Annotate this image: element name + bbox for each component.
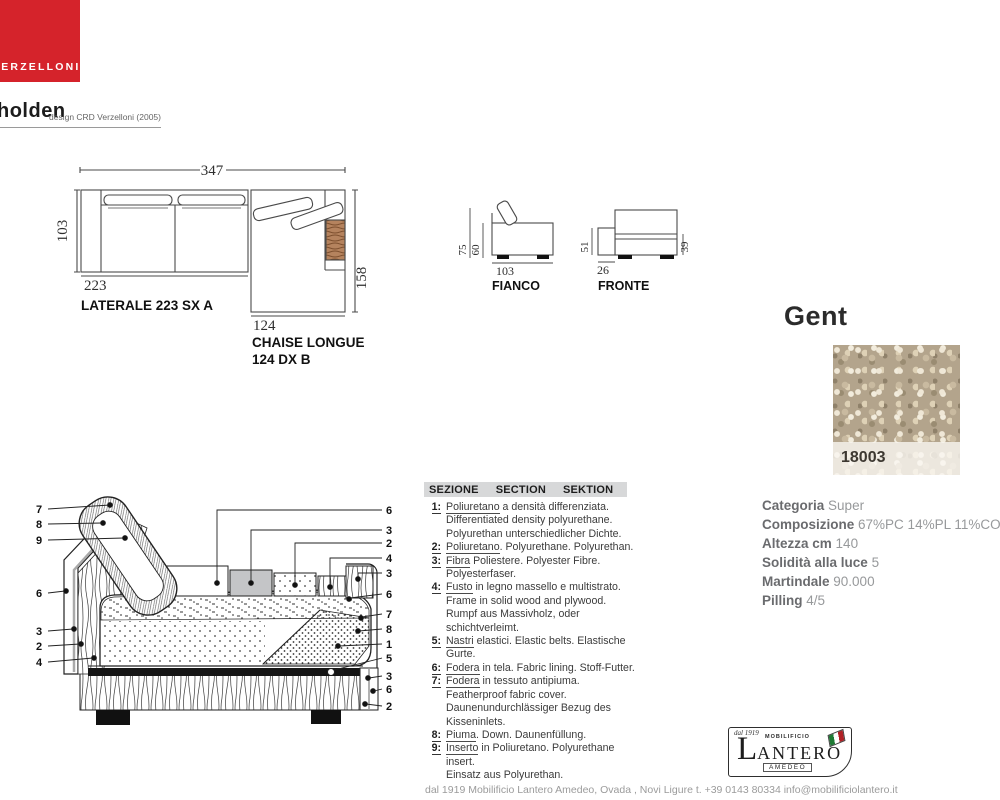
legend-item: 8: Piuma. Down. Daunenfüllung. [424, 729, 639, 742]
fronte-body [615, 210, 677, 255]
callout-left-3: 6 [36, 588, 42, 600]
spec-row: Altezza cm 140 [762, 534, 1000, 553]
fianco-body [492, 223, 553, 255]
legend-item: 2: Poliuretano. Polyurethane. Polyuretha… [424, 541, 639, 554]
legend-item: 3: Fibra Poliestere. Polyester Fibre. Po… [424, 555, 639, 582]
lateral-label: LATERALE 223 SX A [81, 298, 213, 313]
callout-right-4: 3 [386, 568, 392, 580]
fabric-name: Gent [784, 301, 848, 332]
dim-line-103 [74, 190, 80, 272]
section-legend: 1: Poliuretano a densità differenziata. … [424, 501, 639, 783]
callout-left-6: 4 [36, 657, 43, 669]
fronte-dim-51: 51 [579, 242, 591, 253]
chaise-label-2: 124 DX B [252, 352, 311, 367]
section-foot-right [311, 710, 341, 724]
section-diagram: 7 8 9 6 3 2 4 6 3 2 4 3 6 7 8 1 5 3 6 2 [28, 478, 403, 748]
fianco-dim-60: 60 [470, 244, 482, 256]
callout-right-2: 2 [386, 538, 392, 550]
fronte-armrest [598, 228, 615, 255]
callout-left-4: 3 [36, 626, 42, 638]
callout-right-5: 6 [386, 589, 392, 601]
callout-left-1: 8 [36, 519, 42, 531]
dim-103: 103 [55, 220, 71, 243]
chaise-wood-insert [326, 220, 345, 260]
design-credit: design CRD Verzelloni (2005) [49, 112, 161, 122]
fronte-dim-26: 26 [597, 263, 609, 277]
callout-right-9: 5 [386, 653, 392, 665]
section-foot-left [96, 710, 130, 725]
legend-item: 1: Poliuretano a densità differenziata. … [424, 501, 639, 541]
callout-right-11: 6 [386, 684, 392, 696]
lantero-amedeo: AMEDEO [763, 763, 812, 772]
callout-right-0: 6 [386, 505, 392, 517]
fabric-swatch: 18003 [833, 345, 960, 475]
dim-347: 347 [201, 163, 224, 179]
fianco-label: FIANCO [492, 279, 540, 293]
section-platform-bar [88, 668, 363, 676]
dim-line-158 [352, 190, 358, 312]
spec-row: Pilling 4/5 [762, 591, 1000, 610]
footer-contact-line: dal 1919 Mobilificio Lantero Amedeo, Ova… [425, 784, 898, 796]
legend-item: 6: Fodera in tela. Fabric lining. Stoff-… [424, 662, 639, 675]
dim-223: 223 [84, 278, 107, 294]
verzelloni-logo-text: VERZELLONI [0, 61, 81, 73]
spec-row: Martindale 90.000 [762, 572, 1000, 591]
section-belt-anchor [328, 669, 335, 676]
fianco-dim-103: 103 [496, 264, 514, 278]
legend-header: SEZIONE SECTION SEKTION [424, 482, 627, 497]
datasheet-page: VERZELLONI holden design CRD Verzelloni … [0, 0, 1000, 800]
spec-row: Solidità alla luce 5 [762, 553, 1000, 572]
callout-right-1: 3 [386, 525, 392, 537]
lantero-logo: dal 1919 MOBILIFICIO LANTERO AMEDEO [728, 727, 852, 777]
callout-left-0: 7 [36, 504, 42, 516]
verzelloni-logo: VERZELLONI [0, 0, 80, 82]
plan-drawing: 347 103 223 LATERALE 223 SX A 158 124 CH… [40, 150, 720, 385]
spec-row: Categoria Super [762, 496, 1000, 515]
fabric-specs: Categoria Super Composizione 67%PC 14%PL… [762, 496, 1000, 610]
italian-flag-icon [828, 729, 846, 747]
callout-right-12: 2 [386, 701, 392, 713]
legend-item: 9: Inserto in Poliuretano. Polyurethane … [424, 742, 639, 782]
dim-158: 158 [354, 267, 370, 290]
chaise-label-1: CHAISE LONGUE [252, 335, 365, 350]
callout-right-10: 3 [386, 671, 392, 683]
fianco-dim-75: 75 [457, 244, 469, 256]
callout-right-8: 1 [386, 639, 392, 651]
callout-right-6: 7 [386, 609, 392, 621]
fronte-label: FRONTE [598, 279, 649, 293]
callout-right-3: 4 [386, 553, 393, 565]
section-arm-wood [346, 566, 373, 598]
legend-item: 5: Nastri elastici. Elastic belts. Elast… [424, 635, 639, 662]
dim-124: 124 [253, 318, 276, 334]
lantero-name: LANTERO [737, 734, 842, 764]
header-rule [0, 127, 161, 128]
legend-item: 4: Fusto in legno massello e multistrato… [424, 581, 639, 635]
callout-left-2: 9 [36, 535, 42, 547]
section-base-wood [80, 672, 373, 710]
fronte-dim-39: 39 [679, 241, 691, 253]
callout-right-7: 8 [386, 624, 392, 636]
spec-row: Composizione 67%PC 14%PL 11%CO 8%WC [762, 515, 1000, 534]
fabric-code: 18003 [841, 449, 886, 467]
callout-left-5: 2 [36, 641, 42, 653]
legend-item: 7: Fodera in tessuto antipiuma. Featherp… [424, 675, 639, 729]
